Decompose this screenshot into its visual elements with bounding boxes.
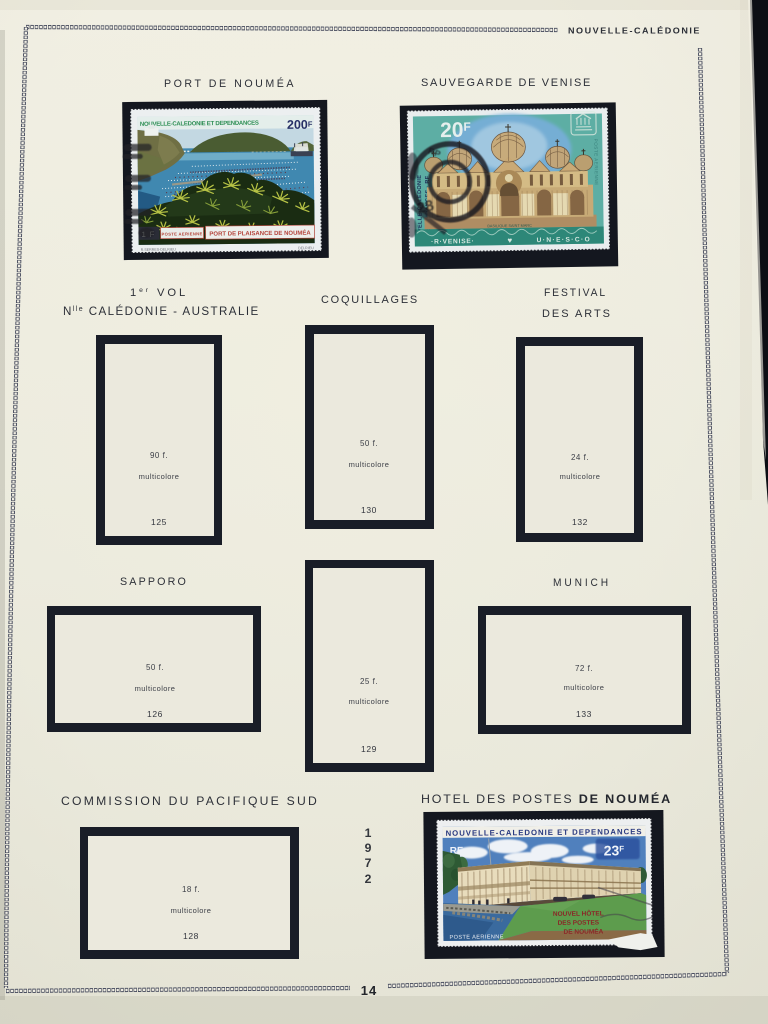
svg-text:multicolore: multicolore (135, 684, 176, 693)
svg-text:72 f.: 72 f. (575, 664, 593, 673)
svg-text:128: 128 (183, 931, 199, 941)
svg-text:NOUVEL HÔTEL: NOUVEL HÔTEL (553, 908, 604, 917)
svg-text:14: 14 (361, 983, 377, 998)
svg-text:multicolore: multicolore (139, 472, 180, 481)
svg-text:9: 9 (365, 841, 372, 855)
svg-text:90 f.: 90 f. (150, 451, 168, 460)
svg-text:DELRIEU: DELRIEU (298, 246, 314, 250)
svg-text:130: 130 (361, 505, 377, 515)
svg-text:Nlle CALÉDONIE - AUSTRALIE: Nlle CALÉDONIE - AUSTRALIE (63, 305, 260, 318)
svg-text:50 f.: 50 f. (360, 439, 378, 448)
svg-text:POSTE AERIENNE: POSTE AERIENNE (449, 934, 503, 940)
svg-text:PORT DE NOUMÉA: PORT DE NOUMÉA (164, 77, 296, 90)
svg-text:18 f.: 18 f. (182, 885, 200, 894)
svg-text:125: 125 (151, 517, 167, 527)
svg-text:SAUVEGARDE DE VENISE: SAUVEGARDE DE VENISE (421, 77, 592, 89)
svg-text:MUNICH: MUNICH (553, 577, 611, 589)
svg-text:HOTEL DES POSTES DE NOUMÉA: HOTEL DES POSTES DE NOUMÉA (421, 791, 672, 806)
svg-text:133: 133 (576, 709, 592, 719)
svg-text:NOUVELLE-CALÉDONIE: NOUVELLE-CALÉDONIE (568, 26, 701, 36)
svg-text:multicolore: multicolore (564, 683, 605, 692)
svg-text:multicolore: multicolore (349, 697, 390, 706)
svg-text:NOUVELLE-CALEDONIE ET DEPENDAN: NOUVELLE-CALEDONIE ET DEPENDANCES (140, 121, 259, 128)
svg-text:R.SERRES-DELRIEU: R.SERRES-DELRIEU (141, 248, 177, 252)
svg-text:50 f.: 50 f. (146, 663, 164, 672)
svg-text:COQUILLAGES: COQUILLAGES (321, 294, 419, 306)
svg-text:FESTIVAL: FESTIVAL (544, 287, 607, 299)
svg-text:multicolore: multicolore (560, 472, 601, 481)
svg-text:COMMISSION DU PACIFIQUE SUD: COMMISSION DU PACIFIQUE SUD (61, 794, 319, 808)
svg-text:DES ARTS: DES ARTS (542, 308, 612, 320)
svg-text:1: 1 (365, 826, 372, 840)
svg-text:POSTE AERIENNE: POSTE AERIENNE (162, 231, 203, 236)
svg-text:NOUVELLE-CALEDONIE ET DEPENDAN: NOUVELLE-CALEDONIE ET DEPENDANCES (446, 827, 642, 838)
svg-text:7: 7 (365, 856, 372, 870)
svg-text:126: 126 (147, 709, 163, 719)
svg-text:25 f.: 25 f. (360, 677, 378, 686)
svg-text:1er VOL: 1er VOL (130, 287, 188, 299)
svg-text:2: 2 (365, 872, 372, 886)
svg-text:multicolore: multicolore (171, 906, 212, 915)
svg-text:DES POSTES: DES POSTES (558, 920, 600, 927)
svg-text:24 f.: 24 f. (571, 453, 589, 462)
svg-text:132: 132 (572, 517, 588, 527)
svg-text:DE NOUMÉA: DE NOUMÉA (564, 926, 604, 935)
svg-text:129: 129 (361, 744, 377, 754)
svg-text:multicolore: multicolore (349, 460, 390, 469)
svg-text:SAPPORO: SAPPORO (120, 576, 188, 588)
